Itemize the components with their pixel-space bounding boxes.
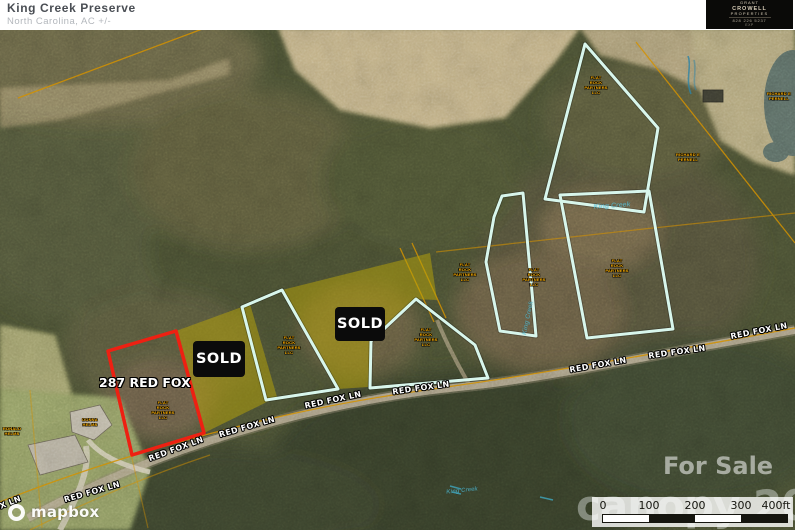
page-subtitle: North Carolina, AC +/- [7,16,111,27]
parcel-owner-label: RONALDHELMS [3,426,21,436]
header-bar: King Creek Preserve North Carolina, AC +… [0,0,795,30]
mapbox-wordmark: mapbox [31,503,99,521]
broker-name-line: PROPERTIES [731,12,769,16]
road-label: RED FOX LN [218,415,276,440]
map-scale-bar: 0100200300400ft [592,497,793,527]
scale-segment [695,515,741,522]
parcel-owner-label: FLATROCKPARTNERSLLC [151,400,174,420]
sold-badge: SOLD [193,341,245,377]
listing-map-screenshot: For Sale canopy 2025 RED FOX LNRED FOX L… [0,0,795,530]
scale-bar-segments [602,514,788,523]
parcel-owner-label: RICHARD EPERNELL [676,152,700,162]
stream-label: King Creek [593,201,630,211]
scale-segment [603,515,649,522]
mapbox-attribution[interactable]: mapbox [8,503,99,521]
scale-segment [741,515,787,522]
broker-tag: EXP [745,24,754,28]
page-title: King Creek Preserve [7,1,136,15]
stream-label: King Creek [446,486,478,495]
road-label: RED FOX LN [392,380,450,397]
sold-badge: SOLD [335,307,385,341]
road-label: RED FOX LN [63,480,121,505]
parcel-owner-label: FLATROCKPARTNERSLLC [414,327,437,347]
parcel-owner-label: FLATROCKPARTNERSLLC [522,267,545,287]
featured-parcel-label: 287 RED FOX [99,375,191,390]
parcel-owner-label: FLATROCKPARTNERSLLC [453,262,476,282]
parcel-owner-label: DONNAHELMS [82,417,98,427]
broker-logo-badge: GRANT CROWELL PROPERTIES 828 226 5237 EX… [706,0,793,29]
parcel-owner-label: FLATROCKPARTNERSLLC [277,335,300,355]
scale-tick: 0 [600,499,607,512]
scale-tick: 200 [685,499,706,512]
scale-segment [649,515,695,522]
map-label-layer: RED FOX LNRED FOX LNRED FOX LNRED FOX LN… [0,0,795,530]
road-label: RED FOX LN [147,435,204,463]
parcel-owner-label: FLATROCKPARTNERSLLC [605,258,628,278]
road-label: RED FOX LN [569,356,627,375]
parcel-owner-label: RICHARD EPERNELL [767,91,791,101]
scale-tick: 300 [731,499,752,512]
road-label: RED FOX LN [730,321,788,341]
road-label: RED FOX LN [304,390,362,411]
parcel-owner-label: FLATROCKPARTNERSLLC [584,75,607,95]
scale-tick: 100 [639,499,660,512]
mapbox-logo-icon [8,504,25,521]
scale-tick: 400ft [762,499,791,512]
stream-label: King Creek [521,300,535,335]
road-label: RED FOX LN [648,344,706,361]
